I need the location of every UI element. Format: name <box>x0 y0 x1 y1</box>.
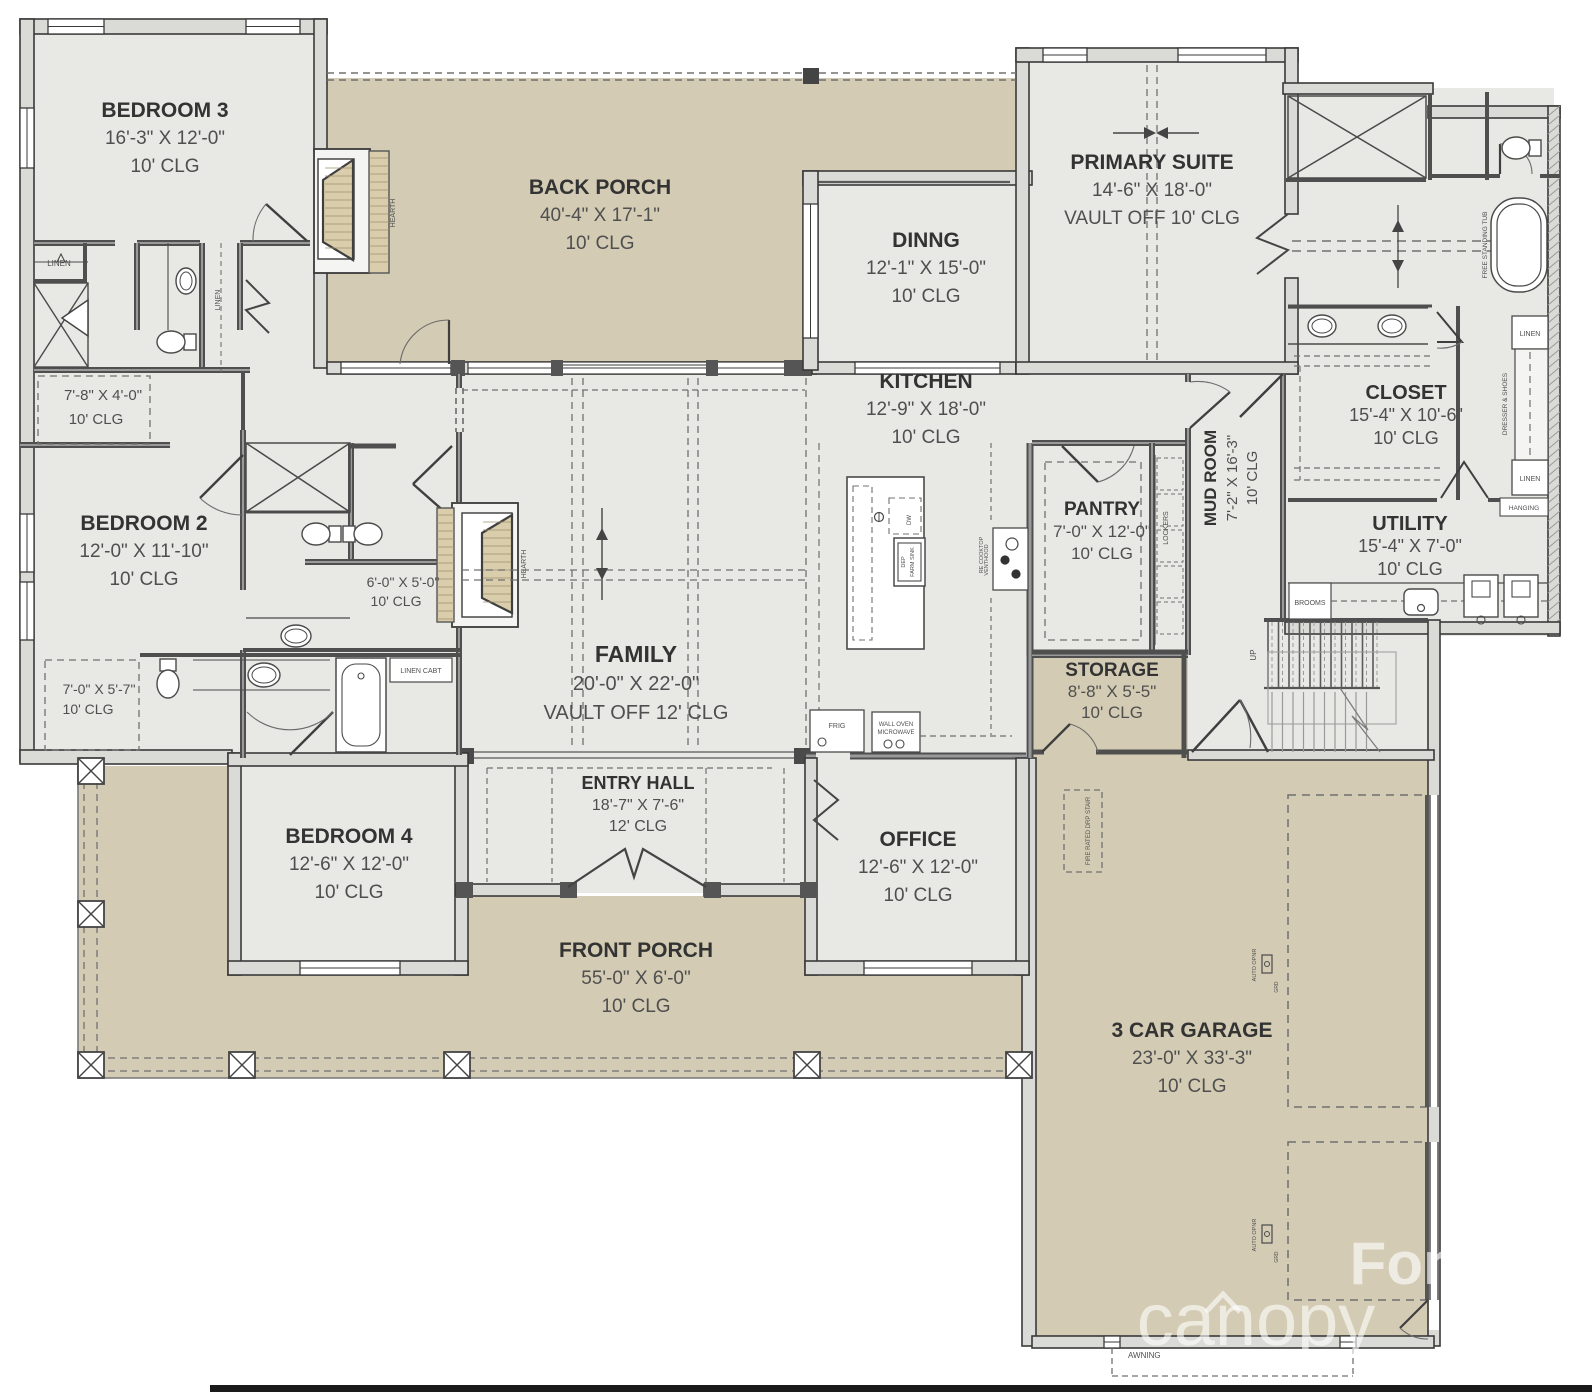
svg-text:UP: UP <box>1249 649 1258 660</box>
svg-text:WALL OVEN: WALL OVEN <box>879 722 914 728</box>
svg-text:12' CLG: 12' CLG <box>609 818 667 835</box>
svg-text:10' CLG: 10' CLG <box>1373 428 1438 448</box>
svg-text:12'-9" X 18'-0": 12'-9" X 18'-0" <box>866 399 986 420</box>
svg-text:10' CLG: 10' CLG <box>565 233 634 254</box>
svg-text:10' CLG: 10' CLG <box>601 996 670 1017</box>
svg-text:15'-4" X 7'-0": 15'-4" X 7'-0" <box>1358 536 1462 556</box>
svg-text:DINNG: DINNG <box>892 229 960 252</box>
svg-text:12'-1" X 15'-0": 12'-1" X 15'-0" <box>866 258 986 279</box>
svg-text:canopy: canopy <box>1137 1278 1376 1361</box>
svg-text:FARM SINK: FARM SINK <box>910 547 916 577</box>
svg-text:FAMILY: FAMILY <box>595 641 677 667</box>
svg-text:FIRE RATED DRP STAIR: FIRE RATED DRP STAIR <box>1086 796 1092 865</box>
svg-text:18'-7" X 7'-6": 18'-7" X 7'-6" <box>592 797 684 814</box>
svg-text:55'-0" X 6'-0": 55'-0" X 6'-0" <box>581 968 690 989</box>
svg-text:PRIMARY SUITE: PRIMARY SUITE <box>1070 151 1233 174</box>
svg-text:MICROWAVE: MICROWAVE <box>878 730 915 736</box>
svg-text:FRIG: FRIG <box>829 723 846 730</box>
svg-text:10' CLG: 10' CLG <box>130 156 199 177</box>
svg-text:12'-6" X 12'-0": 12'-6" X 12'-0" <box>858 857 978 878</box>
svg-text:8'-8" X 5'-5": 8'-8" X 5'-5" <box>1068 682 1157 701</box>
svg-text:DW: DW <box>907 515 913 525</box>
svg-text:14'-6" X 18'-0": 14'-6" X 18'-0" <box>1092 180 1212 201</box>
svg-text:UTILITY: UTILITY <box>1372 513 1448 535</box>
svg-text:GRD: GRD <box>1274 1251 1280 1263</box>
svg-text:KITCHEN: KITCHEN <box>879 370 972 393</box>
svg-text:16'-3" X 12'-0": 16'-3" X 12'-0" <box>105 128 225 149</box>
svg-text:LINEN: LINEN <box>1520 331 1541 338</box>
svg-text:12'-0" X 11'-10": 12'-0" X 11'-10" <box>79 541 208 562</box>
svg-text:ENTRY HALL: ENTRY HALL <box>581 773 694 793</box>
svg-text:10' CLG: 10' CLG <box>371 593 422 609</box>
svg-text:RE COOKTOP: RE COOKTOP <box>979 536 985 573</box>
svg-text:BEDROOM 3: BEDROOM 3 <box>101 99 228 122</box>
svg-text:20'-0" X 22'-0": 20'-0" X 22'-0" <box>573 673 699 695</box>
svg-text:10' CLG: 10' CLG <box>891 427 960 448</box>
svg-text:10' CLG: 10' CLG <box>1071 544 1133 563</box>
svg-text:40'-4" X 17'-1": 40'-4" X 17'-1" <box>540 205 660 226</box>
svg-text:FREE STANDING TUB: FREE STANDING TUB <box>1482 212 1489 279</box>
svg-text:FRONT PORCH: FRONT PORCH <box>559 939 713 962</box>
svg-text:BEDROOM 2: BEDROOM 2 <box>80 512 207 535</box>
svg-text:MUD ROOM: MUD ROOM <box>1201 430 1220 526</box>
svg-text:12'-6" X 12'-0": 12'-6" X 12'-0" <box>289 854 409 875</box>
svg-text:AUTO OPNR: AUTO OPNR <box>1252 1219 1258 1252</box>
svg-text:DEP: DEP <box>901 556 907 568</box>
svg-text:10' CLG: 10' CLG <box>1157 1076 1226 1097</box>
svg-text:10' CLG: 10' CLG <box>891 286 960 307</box>
svg-text:LINEN CABT: LINEN CABT <box>400 668 442 675</box>
svg-text:CLOSET: CLOSET <box>1365 382 1446 404</box>
svg-text:LINEN: LINEN <box>1520 476 1541 483</box>
svg-text:BEDROOM 4: BEDROOM 4 <box>285 825 413 848</box>
svg-text:OFFICE: OFFICE <box>880 828 957 851</box>
svg-text:LOCKERS: LOCKERS <box>1163 511 1170 545</box>
svg-text:VAULT OFF 10' CLG: VAULT OFF 10' CLG <box>1064 208 1240 229</box>
svg-text:7'-0" X 12'-0": 7'-0" X 12'-0" <box>1053 522 1151 541</box>
svg-text:10' CLG: 10' CLG <box>109 569 178 590</box>
svg-text:3 CAR GARAGE: 3 CAR GARAGE <box>1111 1019 1272 1042</box>
svg-text:AUTO OPNR: AUTO OPNR <box>1252 949 1258 982</box>
svg-text:23'-0" X 33'-3": 23'-0" X 33'-3" <box>1132 1048 1252 1069</box>
svg-text:PANTRY: PANTRY <box>1064 499 1140 520</box>
svg-text:7'-0" X 5'-7": 7'-0" X 5'-7" <box>63 681 136 697</box>
svg-text:15'-4" X 10'-6": 15'-4" X 10'-6" <box>1349 405 1463 425</box>
svg-text:GRD: GRD <box>1274 981 1280 993</box>
svg-text:STORAGE: STORAGE <box>1065 660 1159 681</box>
svg-text:BACK PORCH: BACK PORCH <box>529 176 671 199</box>
svg-text:HEARTH: HEARTH <box>390 199 397 228</box>
svg-text:10' CLG: 10' CLG <box>1377 559 1442 579</box>
svg-text:HANGING: HANGING <box>1509 505 1539 512</box>
svg-text:10' CLG: 10' CLG <box>314 882 383 903</box>
svg-text:10' CLG: 10' CLG <box>69 411 124 428</box>
svg-text:HEARTH: HEARTH <box>521 550 528 579</box>
svg-text:6'-0" X 5'-0": 6'-0" X 5'-0" <box>367 574 440 590</box>
svg-text:10' CLG: 10' CLG <box>1081 703 1143 722</box>
svg-text:LINEN: LINEN <box>47 259 71 268</box>
svg-text:BROOMS: BROOMS <box>1294 600 1325 607</box>
svg-text:7'-2" X 16'-3": 7'-2" X 16'-3" <box>1224 435 1241 521</box>
svg-text:10' CLG: 10' CLG <box>1244 451 1261 506</box>
svg-text:DRESSER & SHOES: DRESSER & SHOES <box>1502 372 1509 435</box>
svg-text:VAULT OFF 12' CLG: VAULT OFF 12' CLG <box>544 702 729 724</box>
svg-text:7'-8" X 4'-0": 7'-8" X 4'-0" <box>64 387 142 404</box>
svg-text:10' CLG: 10' CLG <box>883 885 952 906</box>
svg-text:10' CLG: 10' CLG <box>63 701 114 717</box>
